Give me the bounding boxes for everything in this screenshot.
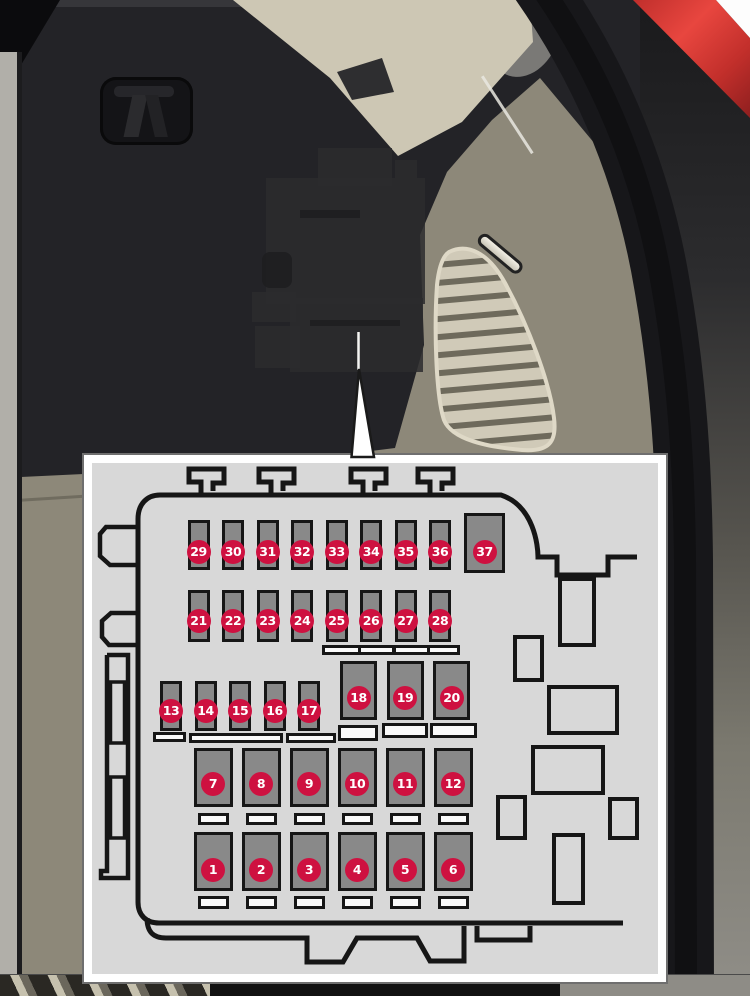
- fuse-panel-outline: [84, 455, 666, 982]
- left-rail-slot-1: [111, 682, 125, 743]
- top-tab-4: [418, 469, 453, 496]
- callout-pointer: [330, 320, 390, 465]
- top-tab-2: [259, 469, 294, 496]
- bottom-step: [477, 926, 530, 940]
- module-seam-1: [300, 210, 360, 218]
- left-tab-1: [100, 527, 138, 565]
- module-knob: [262, 252, 292, 288]
- top-tab-3: [351, 469, 386, 496]
- left-tab-2: [102, 613, 138, 645]
- speaker-grille: [436, 249, 555, 451]
- left-rail-slot-2: [111, 777, 125, 838]
- housing-outline: [138, 495, 637, 923]
- top-tab-1: [189, 469, 224, 496]
- module-connector-1: [252, 292, 296, 322]
- module-detail: [395, 160, 417, 178]
- module-connector-2: [255, 326, 300, 368]
- pointer-triangle: [352, 369, 375, 457]
- screenshot-root: 1234567891011121314151617181920212223242…: [0, 0, 750, 996]
